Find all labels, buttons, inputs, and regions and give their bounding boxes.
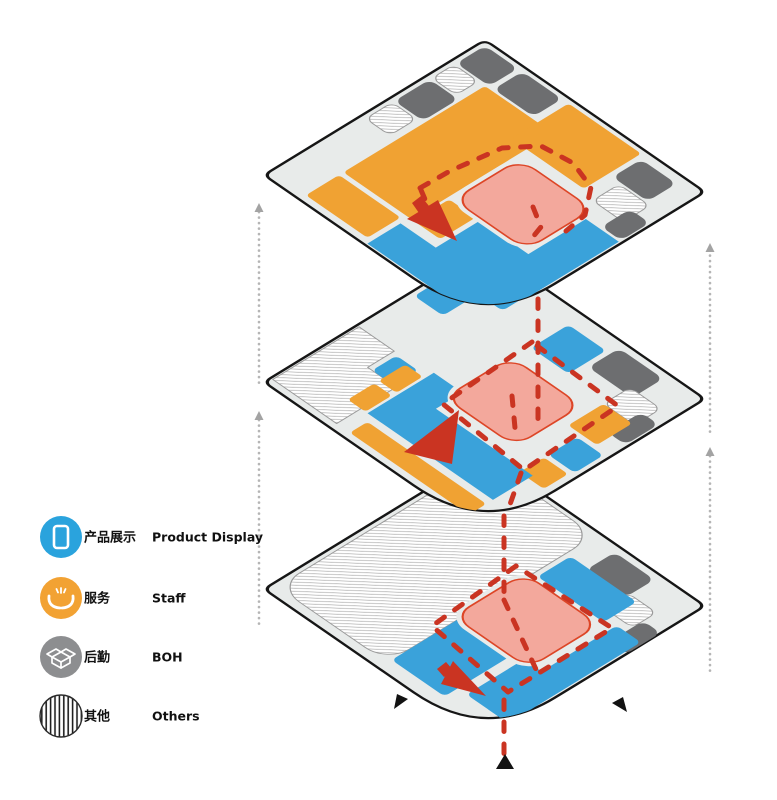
- legend-label-zh: 产品展示: [84, 530, 136, 546]
- legend-label-zh: 服务: [84, 591, 111, 607]
- riser-up-arrow-icon: [255, 203, 264, 212]
- legend-label-en: Others: [152, 709, 200, 724]
- legend-item-others: 其他Others: [40, 695, 200, 737]
- legend-label-zh: 其他: [84, 709, 110, 725]
- riser-up-arrow-icon: [255, 411, 264, 420]
- legend-item-product-display: 产品展示Product Display: [40, 516, 263, 558]
- legend-item-boh: 后勤BOH: [40, 636, 183, 678]
- legend-label-zh: 后勤: [84, 650, 110, 666]
- legend-swatch: [40, 636, 82, 678]
- zones-level-3: [271, 46, 699, 324]
- legend: 产品展示Product Display服务Staff后勤BOH其他Others: [40, 516, 263, 737]
- riser-up-arrow-icon: [706, 447, 715, 456]
- riser-up-arrow-icon: [706, 243, 715, 252]
- entry-arrow-icon: [394, 694, 408, 709]
- diagram-canvas: 产品展示Product Display服务Staff后勤BOH其他Others: [0, 0, 777, 800]
- stripes-icon: [40, 695, 82, 737]
- floor-plates-layer: [264, 40, 705, 769]
- legend-label-en: BOH: [152, 650, 183, 665]
- floor-plate-level-3: [264, 40, 705, 327]
- legend-swatch: [40, 577, 82, 619]
- legend-label-en: Staff: [152, 591, 186, 606]
- entry-arrow-icon: [612, 697, 627, 712]
- legend-item-staff: 服务Staff: [40, 577, 186, 619]
- riser-left: [255, 203, 264, 626]
- legend-label-en: Product Display: [152, 530, 263, 545]
- riser-right: [706, 243, 715, 672]
- entry-arrow-icon: [496, 754, 514, 769]
- axonometric-floor-diagram: 产品展示Product Display服务Staff后勤BOH其他Others: [0, 0, 777, 800]
- legend-swatch: [40, 516, 82, 558]
